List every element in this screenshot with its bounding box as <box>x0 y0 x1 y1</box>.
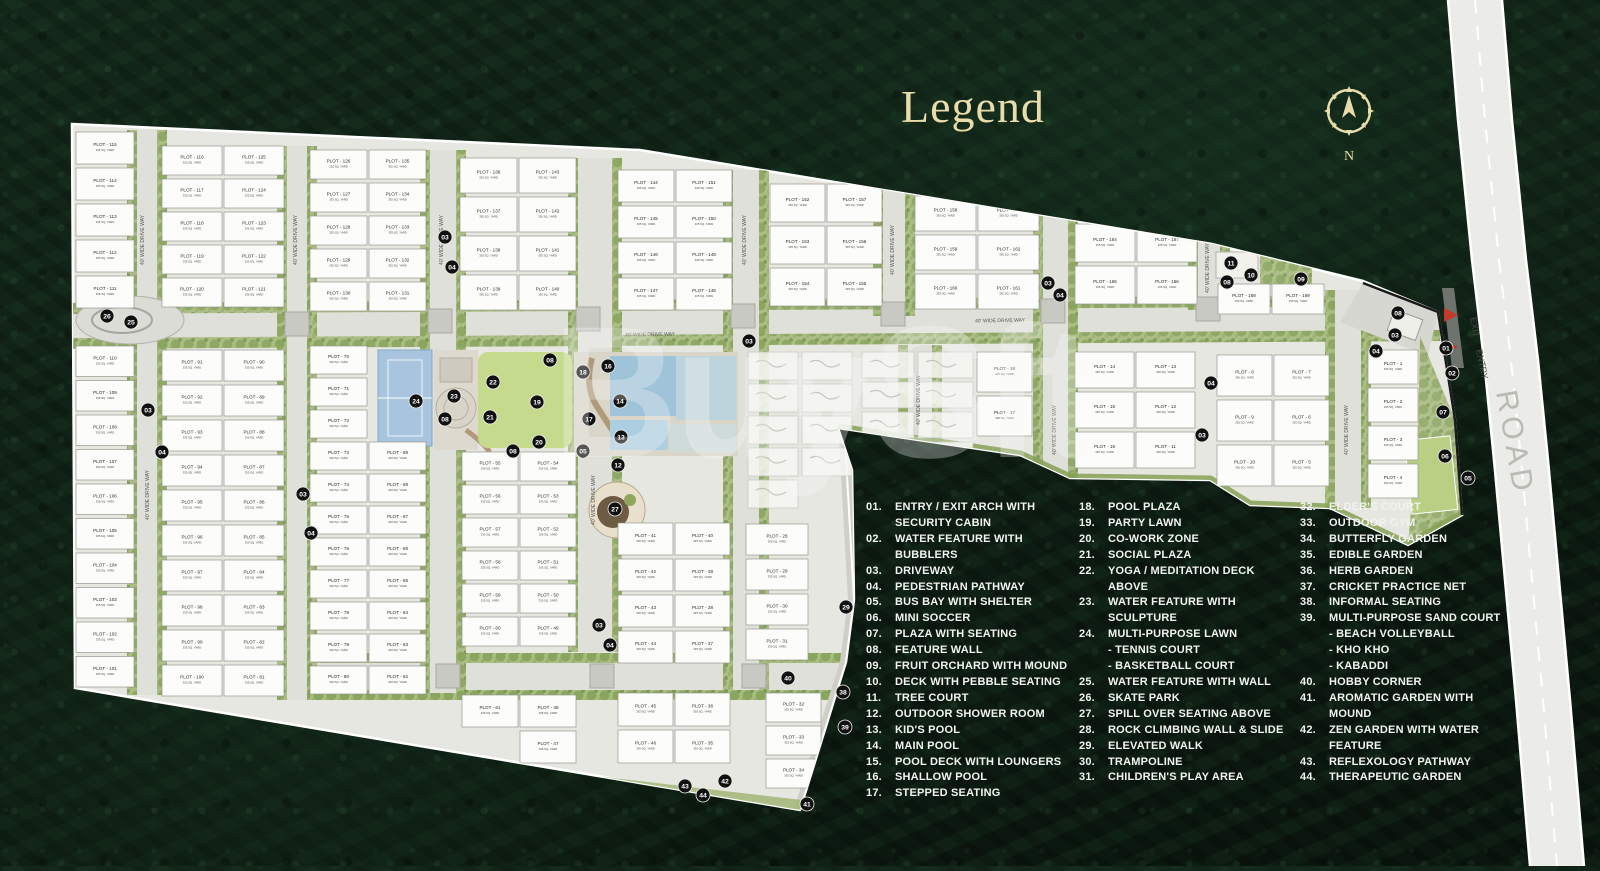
legend-item-label: MULTI-PURPOSE LAWN - TENNIS COURT - BASK… <box>1108 627 1295 675</box>
plot-119: PLOT - 119335 SQ. YARD <box>162 245 222 274</box>
svg-text:16: 16 <box>604 363 612 370</box>
svg-text:335 SQ. YARD: 335 SQ. YARD <box>183 436 202 440</box>
driveway-label: 40' WIDE DRIVE WAY <box>1344 404 1350 455</box>
svg-text:24: 24 <box>412 398 420 405</box>
legend-item-label: CRICKET PRACTICE NET <box>1329 580 1540 596</box>
svg-text:PLOT - 145: PLOT - 145 <box>634 216 658 221</box>
legend-item: 35.EDIBLE GARDEN <box>1300 548 1540 564</box>
svg-text:07: 07 <box>1439 409 1447 416</box>
map-marker-03: 03 <box>1388 328 1402 342</box>
party-lawn <box>478 352 572 448</box>
svg-text:PLOT - 55: PLOT - 55 <box>479 461 501 466</box>
svg-text:PLOT - 122: PLOT - 122 <box>242 254 266 259</box>
legend-item-label: ENTRY / EXIT ARCH WITH SECURITY CABIN <box>895 500 1074 532</box>
svg-text:PLOT - 150: PLOT - 150 <box>692 216 716 221</box>
svg-text:335 SQ. YARD: 335 SQ. YARD <box>479 293 498 297</box>
svg-text:44: 44 <box>699 792 707 799</box>
svg-text:40: 40 <box>784 675 792 682</box>
plot-113: PLOT - 113335 SQ. YARD <box>76 204 134 236</box>
plot-77: PLOT - 77335 SQ. YARD <box>310 570 367 598</box>
driveway-label: 40' WIDE DRIVE WAY <box>916 374 922 425</box>
plot-149: PLOT - 149335 SQ. YARD <box>676 242 732 274</box>
svg-text:PLOT - 168: PLOT - 168 <box>1232 293 1256 298</box>
svg-text:335 SQ. YARD: 335 SQ. YARD <box>329 680 348 684</box>
svg-text:PLOT - 97: PLOT - 97 <box>181 570 203 575</box>
svg-text:PLOT - 79: PLOT - 79 <box>328 642 350 647</box>
amenity-panel <box>918 382 973 408</box>
svg-text:335 SQ. YARD: 335 SQ. YARD <box>388 488 407 492</box>
svg-text:PLOT - 130: PLOT - 130 <box>327 291 351 296</box>
plot-61: PLOT - 61335 SQ. YARD <box>462 695 518 727</box>
map-marker-24: 24 <box>409 394 423 408</box>
svg-text:335 SQ. YARD: 335 SQ. YARD <box>183 401 202 405</box>
legend-column-3: 32.ELDER'S COURT33.OUTDOOR GYM34.BUTTERF… <box>1300 500 1540 786</box>
svg-text:03: 03 <box>1044 280 1052 287</box>
svg-text:PLOT - 134: PLOT - 134 <box>386 192 410 197</box>
svg-text:08: 08 <box>546 357 554 364</box>
plot-76: PLOT - 76335 SQ. YARD <box>310 538 367 566</box>
legend-item: 09.FRUIT ORCHARD WITH MOUND <box>866 659 1074 675</box>
svg-text:PLOT - 144: PLOT - 144 <box>634 180 658 185</box>
legend-item-label: SHALLOW POOL <box>895 770 1074 786</box>
svg-text:PLOT - 81: PLOT - 81 <box>243 675 265 680</box>
svg-text:335 SQ. YARD: 335 SQ. YARD <box>96 637 115 641</box>
svg-text:PLOT - 152: PLOT - 152 <box>786 197 810 202</box>
plot-95: PLOT - 95335 SQ. YARD <box>162 490 222 521</box>
legend-item: 15.POOL DECK WITH LOUNGERS <box>866 755 1074 771</box>
svg-text:PLOT - 46: PLOT - 46 <box>635 741 657 746</box>
map-marker-01: 01 <box>1439 341 1453 355</box>
driveway-label: 40' WIDE DRIVE WAY <box>1052 404 1058 455</box>
amenity-panel <box>918 412 973 438</box>
legend-item-number: 03. <box>866 564 895 580</box>
plot-51: PLOT - 51335 SQ. YARD <box>520 551 576 580</box>
svg-text:335 SQ. YARD: 335 SQ. YARD <box>96 256 115 260</box>
svg-text:335 SQ. YARD: 335 SQ. YARD <box>96 148 115 152</box>
svg-text:PLOT - 16: PLOT - 16 <box>1094 444 1116 449</box>
plot-122: PLOT - 122335 SQ. YARD <box>224 245 284 274</box>
svg-text:335 SQ. YARD: 335 SQ. YARD <box>329 488 348 492</box>
svg-text:335 SQ. YARD: 335 SQ. YARD <box>183 161 202 165</box>
plot-141: PLOT - 141335 SQ. YARD <box>519 236 576 271</box>
svg-text:335 SQ. YARD: 335 SQ. YARD <box>245 506 264 510</box>
legend-item: 40.HOBBY CORNER <box>1300 675 1540 691</box>
plot-123: PLOT - 123335 SQ. YARD <box>224 212 284 241</box>
plot-124: PLOT - 124335 SQ. YARD <box>224 179 284 208</box>
svg-text:335 SQ. YARD: 335 SQ. YARD <box>245 227 264 231</box>
svg-text:PLOT - 113: PLOT - 113 <box>93 214 117 219</box>
plot-143: PLOT - 143335 SQ. YARD <box>519 158 576 193</box>
map-marker-08: 08 <box>1220 275 1234 289</box>
svg-text:335 SQ. YARD: 335 SQ. YARD <box>784 774 803 778</box>
svg-text:PLOT - 158: PLOT - 158 <box>934 208 958 213</box>
svg-text:335 SQ. YARD: 335 SQ. YARD <box>183 293 202 297</box>
amenity-panel <box>918 352 973 378</box>
driveway-label: 40' WIDE DRIVE WAY <box>625 332 676 339</box>
legend-item: 43.REFLEXOLOGY PATHWAY <box>1300 755 1540 771</box>
legend-item-number: 33. <box>1300 516 1329 532</box>
svg-text:PLOT - 161: PLOT - 161 <box>997 286 1021 291</box>
svg-text:PLOT - 118: PLOT - 118 <box>180 221 204 226</box>
svg-text:335 SQ. YARD: 335 SQ. YARD <box>245 541 264 545</box>
plot-48: PLOT - 48335 SQ. YARD <box>520 695 576 727</box>
legend-item-label: CHILDREN'S PLAY AREA <box>1108 770 1295 786</box>
svg-text:335 SQ. YARD: 335 SQ. YARD <box>183 366 202 370</box>
svg-text:335 SQ. YARD: 335 SQ. YARD <box>245 646 264 650</box>
plot-121: PLOT - 121335 SQ. YARD <box>224 278 284 307</box>
multipurpose-court <box>378 350 432 446</box>
legend-item: 31.CHILDREN'S PLAY AREA <box>1079 770 1295 786</box>
svg-text:PLOT - 63: PLOT - 63 <box>387 642 409 647</box>
plot-128: PLOT - 128335 SQ. YARD <box>310 216 367 245</box>
plot-36: PLOT - 36335 SQ. YARD <box>675 693 730 726</box>
svg-text:335 SQ. YARD: 335 SQ. YARD <box>183 646 202 650</box>
svg-text:335 SQ. YARD: 335 SQ. YARD <box>96 672 115 676</box>
legend-item-label: ROCK CLIMBING WALL & SLIDE <box>1108 723 1295 739</box>
legend-item: 11.TREE COURT <box>866 691 1074 707</box>
svg-text:02: 02 <box>1448 370 1456 377</box>
svg-text:335 SQ. YARD: 335 SQ. YARD <box>636 611 655 615</box>
svg-text:335 SQ. YARD: 335 SQ. YARD <box>329 392 348 396</box>
svg-text:PLOT - 35: PLOT - 35 <box>692 741 714 746</box>
legend-item-number: 09. <box>866 659 895 675</box>
legend-item-label: WATER FEATURE WITH SCULPTURE <box>1108 595 1295 627</box>
svg-text:335 SQ. YARD: 335 SQ. YARD <box>481 533 500 537</box>
legend-item: 36.HERB GARDEN <box>1300 564 1540 580</box>
svg-text:335 SQ. YARD: 335 SQ. YARD <box>245 681 264 685</box>
svg-text:335 SQ. YARD: 335 SQ. YARD <box>245 436 264 440</box>
plot-14: PLOT - 14335 SQ. YARD <box>1075 352 1134 388</box>
svg-text:PLOT - 83: PLOT - 83 <box>243 605 265 610</box>
plot-140: PLOT - 140335 SQ. YARD <box>519 275 576 310</box>
plot-111: PLOT - 111335 SQ. YARD <box>76 276 134 308</box>
map-marker-04: 04 <box>1204 376 1218 390</box>
plot-106: PLOT - 106335 SQ. YARD <box>76 484 134 515</box>
legend-item-number: 41. <box>1300 691 1329 723</box>
map-marker-03: 03 <box>296 487 310 501</box>
plot-88: PLOT - 88335 SQ. YARD <box>224 420 284 451</box>
svg-text:335 SQ. YARD: 335 SQ. YARD <box>539 711 558 715</box>
svg-text:PLOT - 59: PLOT - 59 <box>479 593 501 598</box>
svg-text:335 SQ. YARD: 335 SQ. YARD <box>1156 450 1175 454</box>
svg-text:PLOT - 165: PLOT - 165 <box>1093 279 1117 284</box>
svg-text:335 SQ. YARD: 335 SQ. YARD <box>388 616 407 620</box>
svg-text:03: 03 <box>441 234 449 241</box>
plot-152: PLOT - 152335 SQ. YARD <box>770 184 825 222</box>
svg-text:335 SQ. YARD: 335 SQ. YARD <box>1235 376 1254 380</box>
legend-item-label: ELEVATED WALK <box>1108 739 1295 755</box>
compass-north-label: N <box>1320 149 1378 165</box>
svg-text:PLOT - 110: PLOT - 110 <box>93 355 117 360</box>
svg-text:04: 04 <box>1207 380 1215 387</box>
legend-item: 08.FEATURE WALL <box>866 643 1074 659</box>
plot-35: PLOT - 35335 SQ. YARD <box>675 730 730 763</box>
plot-28: PLOT - 28335 SQ. YARD <box>746 524 808 555</box>
legend-item: 21.SOCIAL PLAZA <box>1079 548 1295 564</box>
svg-text:335 SQ. YARD: 335 SQ. YARD <box>936 214 955 218</box>
map-marker-04: 04 <box>1369 344 1383 358</box>
plot-15: PLOT - 15335 SQ. YARD <box>1075 392 1134 428</box>
svg-text:335 SQ. YARD: 335 SQ. YARD <box>768 575 787 579</box>
plot-10: PLOT - 10335 SQ. YARD <box>1217 445 1272 486</box>
svg-text:335 SQ. YARD: 335 SQ. YARD <box>695 294 714 298</box>
svg-text:335 SQ. YARD: 335 SQ. YARD <box>768 610 787 614</box>
svg-text:PLOT - 18: PLOT - 18 <box>994 366 1016 371</box>
legend-item-number: 38. <box>1300 595 1329 611</box>
driveway-label: 40' WIDE DRIVE WAY <box>140 214 146 265</box>
map-marker-19: 19 <box>530 395 544 409</box>
svg-text:01: 01 <box>1442 345 1450 352</box>
compass-rose-icon <box>1320 84 1378 142</box>
svg-text:PLOT - 109: PLOT - 109 <box>93 390 117 395</box>
plot-31: PLOT - 31335 SQ. YARD <box>746 629 808 660</box>
svg-text:335 SQ. YARD: 335 SQ. YARD <box>183 576 202 580</box>
legend-item-number: 08. <box>866 643 895 659</box>
svg-text:PLOT - 93: PLOT - 93 <box>181 430 203 435</box>
svg-text:335 SQ. YARD: 335 SQ. YARD <box>845 287 864 291</box>
svg-text:19: 19 <box>533 399 541 406</box>
svg-text:PLOT - 65: PLOT - 65 <box>387 578 409 583</box>
svg-text:335 SQ. YARD: 335 SQ. YARD <box>245 260 264 264</box>
plot-169: PLOT - 169335 SQ. YARD <box>1272 284 1324 314</box>
plot-69: PLOT - 69335 SQ. YARD <box>369 442 426 470</box>
svg-text:335 SQ. YARD: 335 SQ. YARD <box>96 465 115 469</box>
svg-text:PLOT - 49: PLOT - 49 <box>537 626 559 631</box>
plot-117: PLOT - 117335 SQ. YARD <box>162 179 222 208</box>
legend-item-number: 12. <box>866 707 895 723</box>
plot-97: PLOT - 97335 SQ. YARD <box>162 560 222 591</box>
plot-81: PLOT - 81335 SQ. YARD <box>224 665 284 696</box>
svg-text:PLOT - 105: PLOT - 105 <box>93 528 117 533</box>
svg-text:335 SQ. YARD: 335 SQ. YARD <box>693 710 712 714</box>
svg-text:335 SQ. YARD: 335 SQ. YARD <box>96 430 115 434</box>
svg-text:335 SQ. YARD: 335 SQ. YARD <box>479 215 498 219</box>
svg-text:PLOT - 9: PLOT - 9 <box>1235 415 1254 420</box>
driveway-label: 40' WIDE DRIVE WAY <box>591 474 597 525</box>
svg-text:PLOT - 126: PLOT - 126 <box>327 159 351 164</box>
map-marker-03: 03 <box>438 230 452 244</box>
legend-item: 23.WATER FEATURE WITH SCULPTURE <box>1079 595 1295 627</box>
plot-91: PLOT - 91335 SQ. YARD <box>162 350 222 381</box>
svg-text:PLOT - 100: PLOT - 100 <box>180 675 204 680</box>
plot-96: PLOT - 96335 SQ. YARD <box>162 525 222 556</box>
svg-text:PLOT - 17: PLOT - 17 <box>994 410 1016 415</box>
legend-item-label: DECK WITH PEBBLE SEATING <box>895 675 1074 691</box>
amenity-panel <box>862 442 914 468</box>
svg-text:04: 04 <box>158 449 166 456</box>
svg-text:335 SQ. YARD: 335 SQ. YARD <box>1384 481 1403 485</box>
legend-item: 16.SHALLOW POOL <box>866 770 1074 786</box>
plot-43: PLOT - 43335 SQ. YARD <box>618 595 673 627</box>
svg-text:12: 12 <box>614 462 622 469</box>
plot-86: PLOT - 86335 SQ. YARD <box>224 490 284 521</box>
svg-text:PLOT - 31: PLOT - 31 <box>766 639 788 644</box>
svg-text:PLOT - 56: PLOT - 56 <box>479 494 501 499</box>
map-marker-18: 18 <box>576 365 590 379</box>
svg-text:335 SQ. YARD: 335 SQ. YARD <box>693 647 712 651</box>
driveway-label: 40' WIDE DRIVE WAY <box>975 318 1026 325</box>
svg-text:335 SQ. YARD: 335 SQ. YARD <box>636 747 655 751</box>
svg-text:335 SQ. YARD: 335 SQ. YARD <box>539 599 558 603</box>
svg-text:03: 03 <box>299 491 307 498</box>
svg-text:PLOT - 38: PLOT - 38 <box>692 605 714 610</box>
legend-item-number: 17. <box>866 786 895 802</box>
map-marker-25: 25 <box>124 315 138 329</box>
svg-text:335 SQ. YARD: 335 SQ. YARD <box>693 539 712 543</box>
plot-142: PLOT - 142335 SQ. YARD <box>519 197 576 232</box>
svg-text:05: 05 <box>579 448 587 455</box>
plot-84: PLOT - 84335 SQ. YARD <box>224 560 284 591</box>
legend-item: 37.CRICKET PRACTICE NET <box>1300 580 1540 596</box>
plot-80: PLOT - 80335 SQ. YARD <box>310 666 367 694</box>
map-marker-03: 03 <box>592 618 606 632</box>
svg-text:PLOT - 41: PLOT - 41 <box>635 533 657 538</box>
plot-105: PLOT - 105335 SQ. YARD <box>76 519 134 550</box>
svg-text:04: 04 <box>1372 348 1380 355</box>
svg-text:13: 13 <box>617 434 625 441</box>
svg-text:PLOT - 154: PLOT - 154 <box>786 281 810 286</box>
legend-item-number: 26. <box>1079 691 1108 707</box>
plot-146: PLOT - 146335 SQ. YARD <box>618 242 674 274</box>
plot-70: PLOT - 70335 SQ. YARD <box>310 346 367 374</box>
svg-text:335 SQ. YARD: 335 SQ. YARD <box>538 293 557 297</box>
map-marker-43: 43 <box>678 779 692 793</box>
svg-text:PLOT - 69: PLOT - 69 <box>387 450 409 455</box>
svg-text:PLOT - 104: PLOT - 104 <box>93 562 117 567</box>
svg-text:335 SQ. YARD: 335 SQ. YARD <box>388 648 407 652</box>
svg-text:08: 08 <box>1394 310 1402 317</box>
map-marker-29: 29 <box>839 600 853 614</box>
svg-text:335 SQ. YARD: 335 SQ. YARD <box>693 747 712 751</box>
svg-text:PLOT - 33: PLOT - 33 <box>783 735 805 740</box>
legend-item-label: TRAMPOLINE <box>1108 755 1295 771</box>
svg-text:335 SQ. YARD: 335 SQ. YARD <box>995 372 1014 376</box>
legend-item-label: INFORMAL SEATING <box>1329 595 1540 611</box>
plot-9: PLOT - 9335 SQ. YARD <box>1217 400 1272 441</box>
svg-text:PLOT - 29: PLOT - 29 <box>766 569 788 574</box>
svg-text:335 SQ. YARD: 335 SQ. YARD <box>481 599 500 603</box>
plot-78: PLOT - 78335 SQ. YARD <box>310 602 367 630</box>
svg-text:335 SQ. YARD: 335 SQ. YARD <box>183 194 202 198</box>
svg-text:PLOT - 3: PLOT - 3 <box>1384 437 1403 442</box>
legend-item-label: POOL DECK WITH LOUNGERS <box>895 755 1074 771</box>
driveway-label: 40' WIDE DRIVE WAY <box>293 214 299 265</box>
svg-text:PLOT - 15: PLOT - 15 <box>1094 404 1116 409</box>
svg-text:335 SQ. YARD: 335 SQ. YARD <box>329 648 348 652</box>
svg-text:PLOT - 66: PLOT - 66 <box>387 546 409 551</box>
svg-text:PLOT - 162: PLOT - 162 <box>997 247 1021 252</box>
svg-text:PLOT - 7: PLOT - 7 <box>1292 370 1311 375</box>
plot-114: PLOT - 114335 SQ. YARD <box>76 168 134 200</box>
plot-85: PLOT - 85335 SQ. YARD <box>224 525 284 556</box>
legend-item-number: 27. <box>1079 707 1108 723</box>
svg-text:PLOT - 125: PLOT - 125 <box>242 155 266 160</box>
svg-text:335 SQ. YARD: 335 SQ. YARD <box>1292 466 1311 470</box>
legend-item: 24.MULTI-PURPOSE LAWN - TENNIS COURT - B… <box>1079 627 1295 675</box>
svg-text:PLOT - 74: PLOT - 74 <box>328 482 350 487</box>
legend-item-number: 36. <box>1300 564 1329 580</box>
svg-text:PLOT - 166: PLOT - 166 <box>1155 279 1179 284</box>
plot-125: PLOT - 125335 SQ. YARD <box>224 146 284 175</box>
map-marker-16: 16 <box>601 359 615 373</box>
svg-text:335 SQ. YARD: 335 SQ. YARD <box>999 292 1018 296</box>
svg-text:335 SQ. YARD: 335 SQ. YARD <box>388 165 407 169</box>
svg-text:PLOT - 64: PLOT - 64 <box>387 610 409 615</box>
svg-text:PLOT - 96: PLOT - 96 <box>181 535 203 540</box>
legend-item-number: 31. <box>1079 770 1108 786</box>
svg-text:PLOT - 87: PLOT - 87 <box>243 465 265 470</box>
svg-text:335 SQ. YARD: 335 SQ. YARD <box>1289 299 1308 303</box>
plot-5: PLOT - 5335 SQ. YARD <box>1274 445 1329 486</box>
legend-item-number: 32. <box>1300 500 1329 516</box>
legend-item-label: CO-WORK ZONE <box>1108 532 1295 548</box>
svg-text:335 SQ. YARD: 335 SQ. YARD <box>245 576 264 580</box>
map-marker-04: 04 <box>155 445 169 459</box>
svg-text:335 SQ. YARD: 335 SQ. YARD <box>845 203 864 207</box>
plot-110: PLOT - 110335 SQ. YARD <box>76 346 134 377</box>
map-marker-26: 26 <box>100 309 114 323</box>
legend-item-number: 20. <box>1079 532 1108 548</box>
plot-68: PLOT - 68335 SQ. YARD <box>369 474 426 502</box>
map-marker-04: 04 <box>445 260 459 274</box>
svg-text:PLOT - 67: PLOT - 67 <box>387 514 409 519</box>
svg-text:335 SQ. YARD: 335 SQ. YARD <box>329 231 348 235</box>
plot-153: PLOT - 153335 SQ. YARD <box>770 226 825 264</box>
svg-text:27: 27 <box>611 506 619 513</box>
svg-text:PLOT - 135: PLOT - 135 <box>386 159 410 164</box>
plot-30: PLOT - 30335 SQ. YARD <box>746 594 808 625</box>
svg-text:PLOT - 148: PLOT - 148 <box>692 288 716 293</box>
svg-text:03: 03 <box>745 338 753 345</box>
svg-text:PLOT - 73: PLOT - 73 <box>328 450 350 455</box>
svg-text:PLOT - 138: PLOT - 138 <box>477 248 501 253</box>
svg-text:PLOT - 48: PLOT - 48 <box>537 705 559 710</box>
map-marker-02: 02 <box>1445 366 1459 380</box>
plot-116: PLOT - 116335 SQ. YARD <box>162 146 222 175</box>
plot-12: PLOT - 12335 SQ. YARD <box>1136 392 1195 428</box>
svg-text:PLOT - 123: PLOT - 123 <box>242 221 266 226</box>
plot-145: PLOT - 145335 SQ. YARD <box>618 206 674 238</box>
svg-text:335 SQ. YARD: 335 SQ. YARD <box>329 198 348 202</box>
plot-40: PLOT - 40335 SQ. YARD <box>675 523 730 555</box>
legend-item-number: 24. <box>1079 627 1108 675</box>
plot-92: PLOT - 92335 SQ. YARD <box>162 385 222 416</box>
map-marker-03: 03 <box>1195 428 1209 442</box>
plot-134: PLOT - 134335 SQ. YARD <box>369 183 426 212</box>
plot-65: PLOT - 65335 SQ. YARD <box>369 570 426 598</box>
plot-144: PLOT - 144335 SQ. YARD <box>618 170 674 202</box>
plot-72: PLOT - 72335 SQ. YARD <box>310 410 367 438</box>
plot-41: PLOT - 41335 SQ. YARD <box>618 523 673 555</box>
svg-text:335 SQ. YARD: 335 SQ. YARD <box>481 711 500 715</box>
svg-text:PLOT - 50: PLOT - 50 <box>537 593 559 598</box>
compass: N <box>1320 84 1378 165</box>
svg-text:335 SQ. YARD: 335 SQ. YARD <box>784 741 803 745</box>
plot-99: PLOT - 99335 SQ. YARD <box>162 630 222 661</box>
svg-text:335 SQ. YARD: 335 SQ. YARD <box>96 292 115 296</box>
svg-text:PLOT - 76: PLOT - 76 <box>328 546 350 551</box>
svg-text:PLOT - 47: PLOT - 47 <box>537 741 559 746</box>
legend-item-number: 39. <box>1300 611 1329 675</box>
svg-text:335 SQ. YARD: 335 SQ. YARD <box>245 161 264 165</box>
plot-46: PLOT - 46335 SQ. YARD <box>618 730 673 763</box>
plot-89: PLOT - 89335 SQ. YARD <box>224 385 284 416</box>
svg-text:335 SQ. YARD: 335 SQ. YARD <box>1095 450 1114 454</box>
driveway-label: 40' WIDE DRIVE WAY <box>890 224 896 275</box>
svg-text:335 SQ. YARD: 335 SQ. YARD <box>329 165 348 169</box>
svg-text:04: 04 <box>606 642 614 649</box>
driveway-label: 40' WIDE DRIVE WAY <box>145 469 151 520</box>
